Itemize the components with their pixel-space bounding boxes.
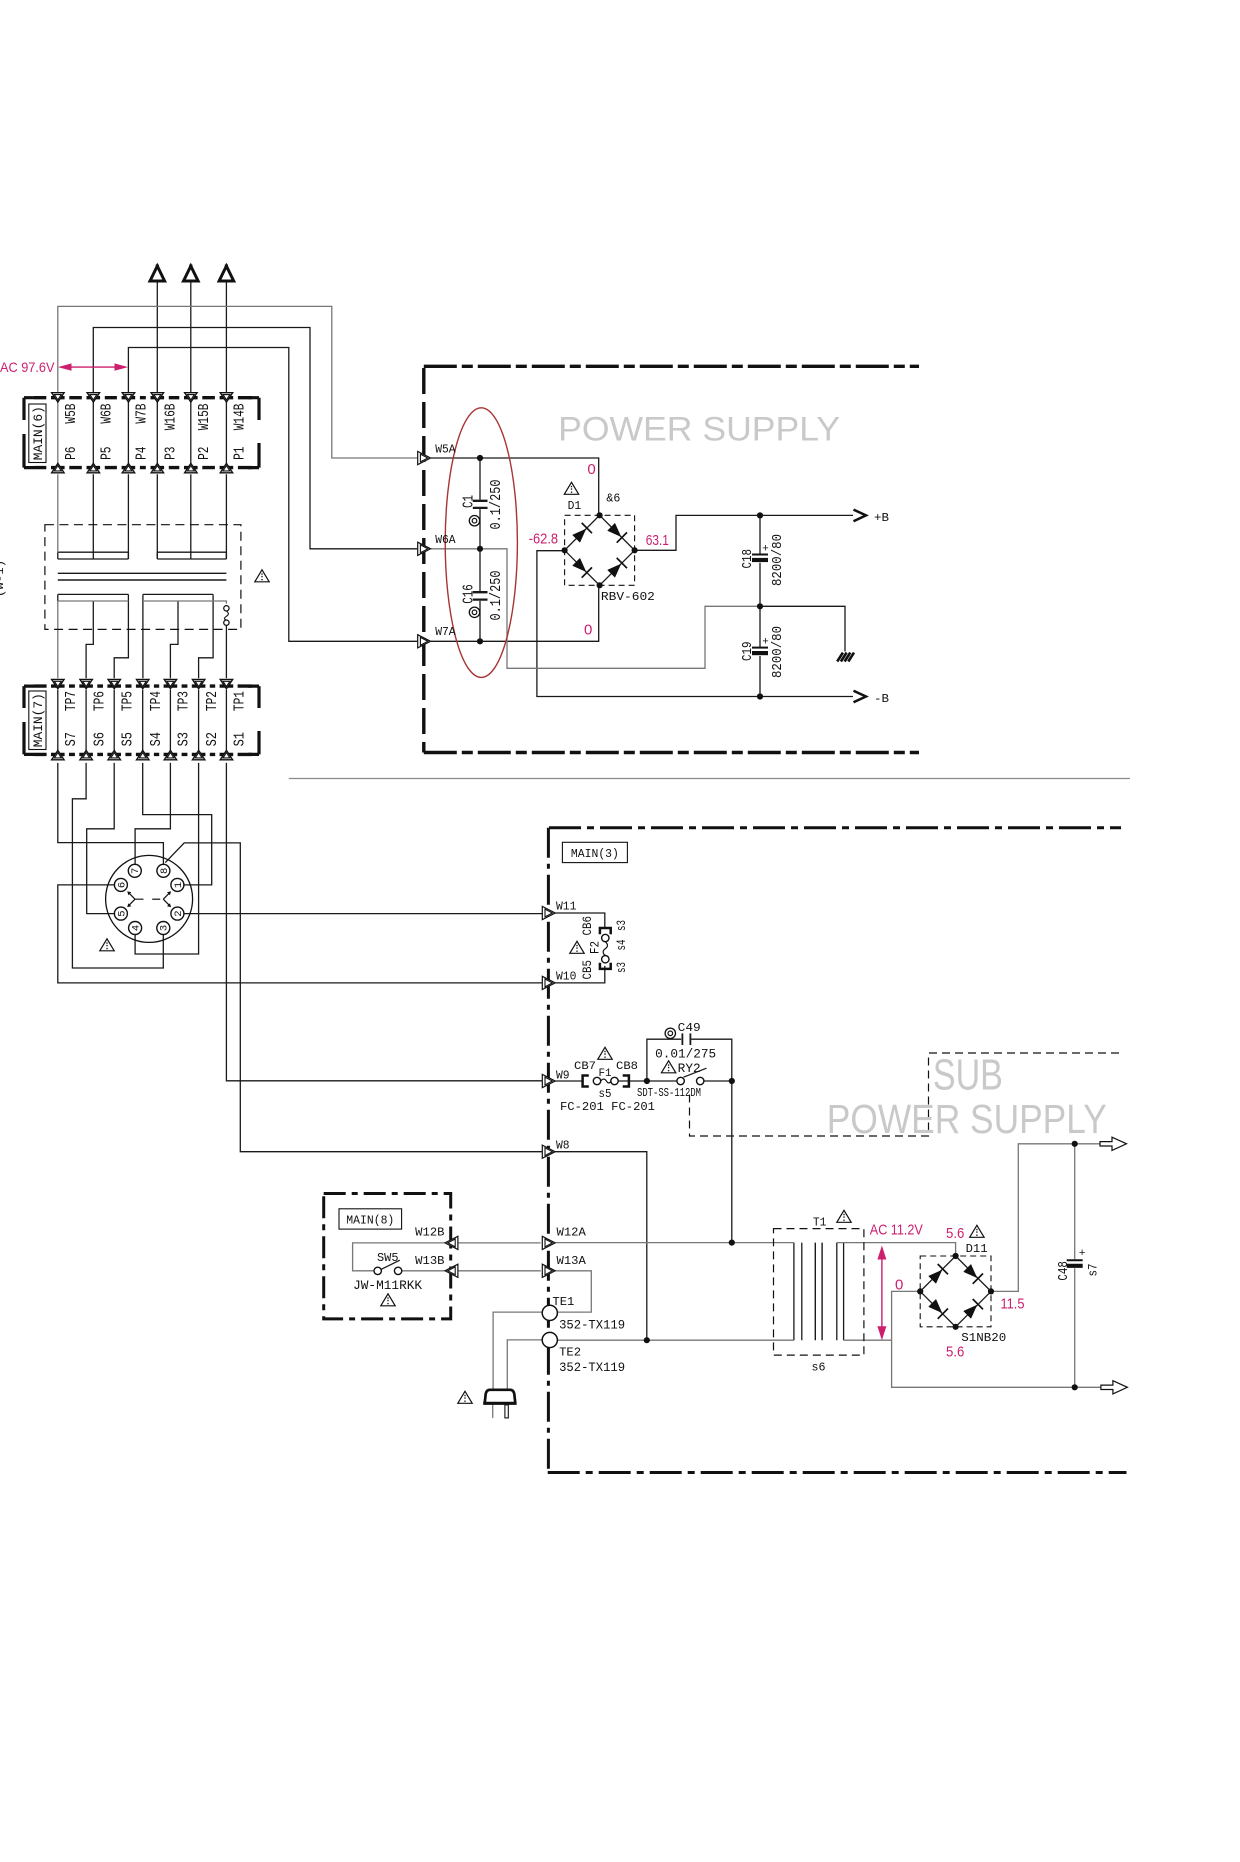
svg-text:C18: C18 xyxy=(740,549,756,569)
svg-text:C49: C49 xyxy=(678,1021,701,1035)
svg-text:W16B: W16B xyxy=(163,404,180,431)
svg-text:S1: S1 xyxy=(232,732,249,746)
svg-text:P6: P6 xyxy=(63,447,80,460)
svg-text:TE1: TE1 xyxy=(552,1296,574,1309)
svg-text:352-TX119: 352-TX119 xyxy=(559,1319,625,1333)
svg-text:-B: -B xyxy=(874,692,889,706)
svg-text:POWER SUPPLY: POWER SUPPLY xyxy=(558,410,840,448)
svg-text:W9: W9 xyxy=(556,1070,570,1083)
svg-text:F1: F1 xyxy=(599,1068,612,1080)
svg-text:P5: P5 xyxy=(99,447,116,460)
svg-text:SW5: SW5 xyxy=(377,1252,399,1265)
svg-text:7: 7 xyxy=(130,868,142,874)
svg-text:AC 97.6V: AC 97.6V xyxy=(0,359,55,375)
svg-text:CB7: CB7 xyxy=(574,1061,596,1073)
svg-text:0.01/275: 0.01/275 xyxy=(655,1048,716,1062)
svg-text:TP3: TP3 xyxy=(176,691,193,711)
svg-text:&6: &6 xyxy=(606,491,620,505)
svg-text:S3: S3 xyxy=(176,732,193,746)
svg-text:+: + xyxy=(762,543,768,555)
svg-text:W13A: W13A xyxy=(557,1255,586,1268)
svg-text:+: + xyxy=(762,635,768,647)
svg-text:0: 0 xyxy=(587,461,595,478)
svg-text:S4: S4 xyxy=(148,732,165,746)
svg-text:W11: W11 xyxy=(556,901,576,914)
svg-text:SUB: SUB xyxy=(933,1051,1003,1100)
svg-text:W7B: W7B xyxy=(134,404,151,424)
svg-text:C48: C48 xyxy=(1056,1261,1072,1281)
svg-text:TP2: TP2 xyxy=(204,691,221,711)
svg-text:C19: C19 xyxy=(740,642,756,662)
svg-text:CB6: CB6 xyxy=(580,916,595,936)
svg-text:TP6: TP6 xyxy=(91,691,108,711)
svg-text:W13B: W13B xyxy=(415,1255,444,1268)
svg-text:W6A: W6A xyxy=(435,534,455,547)
svg-text:CB5: CB5 xyxy=(580,960,595,980)
svg-text:W8: W8 xyxy=(556,1140,570,1153)
svg-text:s3: s3 xyxy=(614,920,629,931)
svg-text:352-TX119: 352-TX119 xyxy=(559,1361,625,1375)
svg-text:2: 2 xyxy=(173,910,185,916)
svg-text:5: 5 xyxy=(116,910,128,916)
svg-text:1: 1 xyxy=(173,882,185,888)
svg-text:FC-201 FC-201: FC-201 FC-201 xyxy=(560,1100,655,1114)
svg-text:TE2: TE2 xyxy=(559,1347,581,1360)
svg-text:0: 0 xyxy=(895,1277,903,1294)
svg-text:T1: T1 xyxy=(813,1217,827,1230)
svg-text:MAIN(8): MAIN(8) xyxy=(346,1214,394,1227)
svg-text:5.6: 5.6 xyxy=(946,1225,964,1242)
svg-text:6: 6 xyxy=(116,882,128,888)
svg-text:4: 4 xyxy=(131,925,143,931)
svg-text:s7: s7 xyxy=(1086,1264,1101,1277)
svg-text:S5: S5 xyxy=(120,732,137,746)
svg-text:W14B: W14B xyxy=(232,404,249,431)
svg-text:s4: s4 xyxy=(614,939,629,950)
svg-text:P1: P1 xyxy=(232,447,249,460)
svg-text:P2: P2 xyxy=(196,447,213,460)
svg-text:(W-1): (W-1) xyxy=(0,560,7,597)
svg-text:3: 3 xyxy=(159,925,171,931)
svg-text:S1NB20: S1NB20 xyxy=(961,1332,1006,1345)
svg-text:RBV-602: RBV-602 xyxy=(601,590,655,604)
svg-text:S7: S7 xyxy=(63,732,80,746)
svg-text:63.1: 63.1 xyxy=(646,532,669,549)
svg-text:D1: D1 xyxy=(568,499,582,513)
svg-text:8200/80: 8200/80 xyxy=(770,626,786,678)
svg-text:S2: S2 xyxy=(204,732,221,746)
svg-text:0.1/250: 0.1/250 xyxy=(488,571,505,621)
svg-text:JW-M11RKK: JW-M11RKK xyxy=(353,1279,423,1293)
svg-text:W5B: W5B xyxy=(63,404,80,424)
svg-text:CB8: CB8 xyxy=(616,1061,638,1073)
svg-text:D11: D11 xyxy=(966,1243,988,1256)
svg-text:+B: +B xyxy=(874,511,889,525)
svg-text:+: + xyxy=(1079,1247,1085,1259)
svg-text:AC 11.2V: AC 11.2V xyxy=(870,1222,923,1239)
svg-text:W7A: W7A xyxy=(435,626,455,639)
svg-text:F2: F2 xyxy=(588,941,603,954)
svg-text:s3: s3 xyxy=(614,962,629,973)
svg-text:11.5: 11.5 xyxy=(1001,1296,1025,1313)
svg-text:MAIN(3): MAIN(3) xyxy=(571,848,619,861)
svg-text:8: 8 xyxy=(159,868,171,874)
svg-text:C16: C16 xyxy=(461,584,478,604)
svg-text:SDT-SS-112DM: SDT-SS-112DM xyxy=(637,1087,701,1100)
svg-text:s6: s6 xyxy=(812,1361,826,1375)
svg-text:P3: P3 xyxy=(163,447,180,460)
svg-text:RY2: RY2 xyxy=(678,1062,701,1076)
svg-text:W10: W10 xyxy=(556,971,576,984)
svg-text:5.6: 5.6 xyxy=(946,1344,964,1361)
svg-text:C1: C1 xyxy=(461,495,478,508)
svg-text:TP1: TP1 xyxy=(232,691,249,711)
svg-text:W15B: W15B xyxy=(196,404,213,431)
svg-text:W12A: W12A xyxy=(557,1227,586,1240)
svg-text:s5: s5 xyxy=(599,1088,612,1101)
svg-text:0.1/250: 0.1/250 xyxy=(488,480,505,530)
svg-text:W5A: W5A xyxy=(435,444,455,457)
svg-text:TP4: TP4 xyxy=(148,691,165,711)
svg-text:MAIN(7): MAIN(7) xyxy=(32,693,46,747)
svg-text:W12B: W12B xyxy=(415,1227,444,1240)
svg-text:TP5: TP5 xyxy=(120,691,137,711)
svg-text:TP7: TP7 xyxy=(63,691,80,711)
svg-text:W6B: W6B xyxy=(99,404,116,424)
svg-text:P4: P4 xyxy=(134,447,151,460)
svg-text:S6: S6 xyxy=(91,732,108,746)
svg-text:0: 0 xyxy=(584,622,592,639)
svg-text:POWER SUPPLY: POWER SUPPLY xyxy=(827,1096,1107,1142)
svg-text:MAIN(6): MAIN(6) xyxy=(32,406,46,460)
svg-text:8200/80: 8200/80 xyxy=(770,534,786,586)
svg-text:-62.8: -62.8 xyxy=(529,531,558,548)
